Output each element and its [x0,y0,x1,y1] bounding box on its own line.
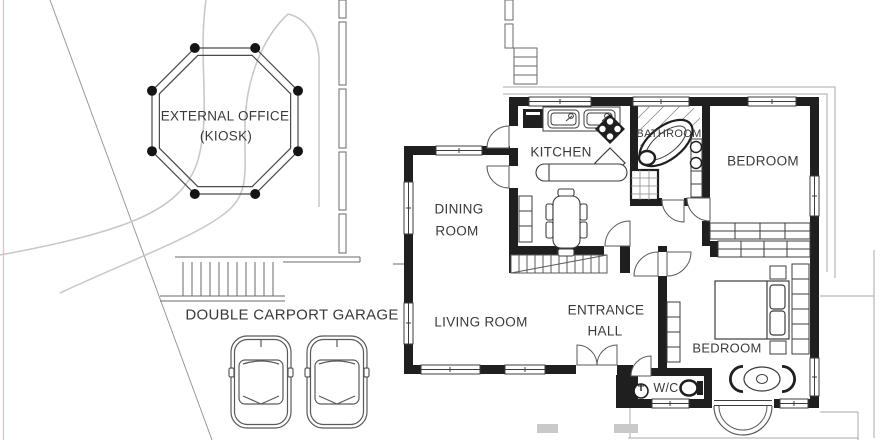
door-arc [667,252,691,276]
window-icon [652,399,689,408]
closet-row-icon [710,223,810,239]
chair-icon [782,368,793,390]
wc-label: W/C [653,381,678,395]
deck-edge [283,257,404,264]
bay-window-icon [712,398,774,435]
garage-label: DOUBLE CARPORT GARAGE [185,307,398,324]
island-counter-icon [536,164,627,181]
fence-left [339,0,346,253]
closet-row-icon [718,241,810,257]
toilet-icon [632,151,655,165]
bedroom-top-label: BEDROOM [727,154,799,169]
towel-radiator-icon [691,139,703,197]
door-arc [687,198,710,221]
double-bed-icon [715,281,789,339]
radiator-icon [519,196,532,242]
window-icon [529,97,591,106]
toilet-icon [681,381,704,396]
garden-stairs [160,257,285,301]
window-icon [633,97,689,106]
door-arc [605,221,630,246]
wc-sink-icon [634,384,648,398]
living-room-label: LIVING ROOM [434,315,527,330]
door-arc [634,252,658,276]
door-arc [487,126,509,148]
window-icon [748,97,796,106]
window-icon [404,303,413,344]
kitchen-label: KITCHEN [530,145,591,160]
shower-icon [631,170,658,200]
nightstand-icon [770,266,786,279]
bedroom-bottom-label: BEDROOM [692,341,761,356]
dining-table-chairs-icon [546,189,587,256]
fridge-icon [523,109,543,128]
entrance-opening [576,364,617,375]
entrance-door-arc [577,345,597,365]
window-icon [780,399,808,408]
bedroom-table-icon [744,367,780,391]
floor-plan-drawing [0,0,890,440]
wardrobe-icon [792,264,809,354]
radiator-icon [667,302,680,362]
door-arc [631,356,651,376]
floor-plan-canvas: EXTERNAL OFFICE (KIOSK) DOUBLE CARPORT G… [0,0,890,440]
entrance-hall-label-line2: HALL [588,324,623,339]
external-office-label-line2: (KIOSK) [200,129,252,144]
door-arc [662,200,684,222]
chair-icon [732,368,743,390]
window-icon [404,182,413,234]
door-arc [487,166,509,188]
car-icon [229,336,293,428]
window-icon [810,176,819,216]
staircase-icon [511,255,607,273]
entrance-steps [537,424,638,433]
fence-north [505,0,537,84]
window-icon [810,358,819,396]
entrance-hall-label-line1: ENTRANCE [568,303,645,318]
dining-room-label-line2: ROOM [435,224,478,239]
window-icon [436,146,482,155]
car-icon [305,336,369,428]
dining-room-label-line1: DINING [434,202,483,217]
nightstand-icon [770,341,786,354]
external-office-label-line1: EXTERNAL OFFICE [161,109,290,124]
window-icon [421,365,480,374]
window-icon [505,365,545,374]
bathroom-label: BATHROOM [636,128,701,140]
entrance-door-arc [597,345,617,365]
